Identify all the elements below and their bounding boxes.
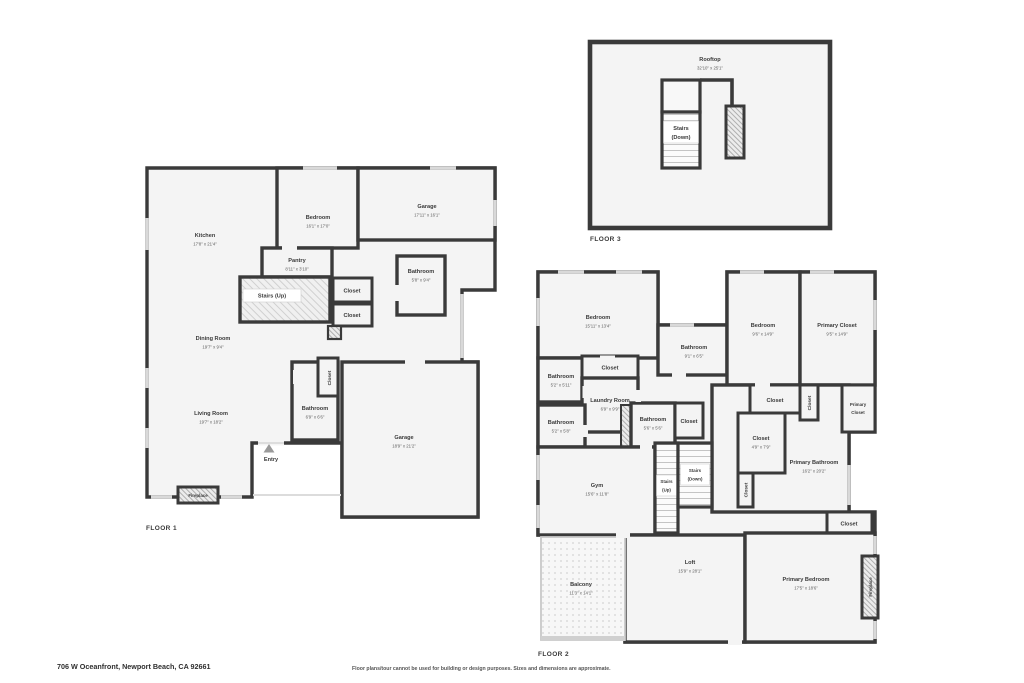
svg-text:9'5" x 14'9": 9'5" x 14'9" [826, 332, 848, 337]
floor-plan-page: Bedroom 16'1" x 17'0" Garage 17'11" x 16… [0, 0, 1024, 683]
svg-text:Closet: Closet [840, 522, 857, 528]
chase-f1 [328, 326, 341, 339]
floor3-label: FLOOR 3 [590, 236, 621, 243]
floor2-label: FLOOR 2 [538, 651, 569, 658]
room-primary-bedroom-f2: Primary Bedroom 17'5" x 18'6" [745, 533, 875, 642]
room-bathroom-upper-f1: Bathroom 5'8" x 9'4" [397, 256, 445, 315]
fireplace-f1: Fireplace [178, 487, 218, 503]
svg-text:(Down): (Down) [672, 135, 691, 141]
disclaimer-text: Floor plans/tour cannot be used for buil… [352, 666, 611, 672]
stairs-down-f2: Stairs (Down) [678, 443, 712, 507]
floor-3-plan: Rooftop 32'10" x 25'1" Stairs (Down) FLO… [590, 42, 830, 243]
svg-text:8'11" x 3'10": 8'11" x 3'10" [285, 267, 309, 272]
svg-text:Entry: Entry [264, 457, 279, 463]
svg-text:Garage: Garage [394, 435, 413, 441]
svg-text:Stairs: Stairs [689, 468, 702, 473]
svg-text:16'1" x 17'0": 16'1" x 17'0" [306, 224, 330, 229]
svg-text:Dining Room: Dining Room [196, 336, 231, 342]
svg-text:Closet: Closet [851, 410, 865, 415]
svg-text:Bedroom: Bedroom [586, 315, 611, 321]
svg-text:17'8" x 21'4": 17'8" x 21'4" [193, 242, 217, 247]
svg-text:19'7" x 18'2": 19'7" x 18'2" [199, 420, 223, 425]
svg-text:Loft: Loft [685, 560, 696, 566]
svg-text:32'10" x 25'1": 32'10" x 25'1" [697, 66, 723, 71]
svg-text:Closet: Closet [752, 436, 769, 442]
svg-text:5'2" x 5'8": 5'2" x 5'8" [552, 429, 571, 434]
room-closet2-f2: Closet [675, 403, 703, 438]
svg-text:19'7" x 9'4": 19'7" x 9'4" [202, 345, 224, 350]
balcony-f2: Balcony 11'3" x 14'1" [541, 537, 625, 641]
svg-text:Bathroom: Bathroom [302, 406, 328, 412]
svg-text:Stairs: Stairs [673, 126, 689, 132]
svg-text:Primary: Primary [850, 402, 867, 407]
svg-text:Garage: Garage [417, 204, 436, 210]
svg-text:15'6" x 11'8": 15'6" x 11'8" [585, 492, 609, 497]
svg-text:Bathroom: Bathroom [548, 420, 574, 426]
room-primary-closet2-f2: Primary Closet [842, 385, 875, 432]
svg-text:Closet: Closet [343, 289, 360, 295]
svg-text:Living Room: Living Room [194, 411, 228, 417]
svg-text:11'3" x 14'1": 11'3" x 14'1" [569, 591, 593, 596]
room-primary-closet1-f2: Primary Closet 9'5" x 14'9" [800, 272, 875, 385]
svg-text:Closet: Closet [327, 370, 333, 385]
svg-text:18'9" x 21'2": 18'9" x 21'2" [392, 444, 416, 449]
svg-text:Primary Bathroom: Primary Bathroom [790, 460, 839, 466]
entry-marker: Entry [258, 441, 284, 464]
property-address: 706 W Oceanfront, Newport Beach, CA 9266… [57, 662, 211, 671]
svg-text:Fireplace: Fireplace [188, 493, 208, 498]
room-garage-lower-f1: Garage 18'9" x 21'2" [342, 362, 478, 517]
svg-text:Gym: Gym [591, 483, 603, 489]
room-bathroom2-f2: Bathroom 5'2" x 5'11" [538, 358, 585, 402]
floor-2-plan: Bedroom 15'11" x 13'4" Bathroom 9'1" x 6… [538, 272, 878, 658]
svg-text:4'9" x 7'9": 4'9" x 7'9" [752, 445, 771, 450]
svg-text:Bathroom: Bathroom [640, 417, 666, 423]
svg-text:5'6" x 5'6": 5'6" x 5'6" [644, 426, 663, 431]
svg-text:Bathroom: Bathroom [408, 269, 434, 275]
room-bedroom-f1: Bedroom 16'1" x 17'0" [277, 168, 358, 248]
svg-text:Kitchen: Kitchen [195, 233, 216, 239]
svg-text:(Down): (Down) [688, 477, 703, 482]
svg-text:Laundry Room: Laundry Room [590, 398, 629, 404]
svg-text:15'11" x 13'4": 15'11" x 13'4" [585, 324, 611, 329]
svg-text:Bedroom: Bedroom [306, 215, 331, 221]
svg-text:Fireplace: Fireplace [868, 577, 873, 597]
room-bathroom1-f2: Bathroom 9'1" x 6'5" [658, 325, 727, 375]
room-bedroom2-f2: Bedroom 9'6" x 14'9" [727, 272, 800, 385]
svg-text:Rooftop: Rooftop [699, 57, 721, 63]
svg-text:Primary Closet: Primary Closet [817, 323, 857, 329]
svg-text:17'5" x 18'6": 17'5" x 18'6" [794, 586, 818, 591]
room-bedroom1-f2: Bedroom 15'11" x 13'4" [538, 272, 658, 358]
room-closet3-f1: Closet [318, 358, 338, 396]
room-loft-f2: Loft 15'9" x 28'1" [625, 535, 745, 642]
room-closet1-f1: Closet [333, 278, 372, 302]
room-pantry-f1: Pantry 8'11" x 3'10" [262, 248, 332, 277]
svg-text:Stairs: Stairs [660, 479, 673, 484]
svg-text:Bathroom: Bathroom [548, 374, 574, 380]
room-closet6-f2: Closet [800, 385, 818, 420]
stairs-up-f1: Stairs (Up) [240, 277, 330, 322]
svg-text:Closet: Closet [343, 313, 360, 319]
svg-text:Closet: Closet [807, 395, 813, 410]
svg-text:5'2" x 5'11": 5'2" x 5'11" [551, 383, 572, 388]
floor-plan-drawing: Bedroom 16'1" x 17'0" Garage 17'11" x 16… [0, 0, 1024, 683]
svg-text:6'9" x 9'9": 6'9" x 9'9" [601, 407, 620, 412]
room-garage-upper-f1: Garage 17'11" x 16'1" [358, 168, 495, 240]
svg-text:9'6" x 14'9": 9'6" x 14'9" [752, 332, 774, 337]
svg-text:17'11" x 16'1": 17'11" x 16'1" [414, 213, 440, 218]
room-bathroom3-f2: Bathroom 5'2" x 5'8" [538, 405, 585, 447]
svg-text:Closet: Closet [744, 482, 750, 497]
room-closet7-f2: Closet [827, 512, 872, 533]
svg-text:Balcony: Balcony [570, 582, 593, 588]
svg-text:Closet: Closet [601, 366, 618, 372]
chimney-f3 [726, 106, 744, 158]
floor1-label: FLOOR 1 [146, 525, 177, 532]
room-bathroom4-f2: Bathroom 5'6" x 5'6" [631, 403, 675, 447]
svg-text:Closet: Closet [766, 398, 783, 404]
floor-1-plan: Bedroom 16'1" x 17'0" Garage 17'11" x 16… [146, 168, 495, 532]
room-closet4-f2: Closet [738, 473, 753, 507]
svg-text:9'1" x 6'5": 9'1" x 6'5" [685, 354, 704, 359]
svg-text:16'2" x 20'2": 16'2" x 20'2" [802, 469, 826, 474]
svg-text:Bathroom: Bathroom [681, 345, 707, 351]
room-closet2-f1: Closet [333, 304, 372, 326]
svg-text:5'8" x 9'4": 5'8" x 9'4" [412, 278, 431, 283]
fireplace-f2: Fireplace [862, 556, 878, 618]
svg-text:Closet: Closet [680, 419, 697, 425]
svg-text:6'9" x 6'6": 6'9" x 6'6" [306, 415, 325, 420]
room-closet3-f2: Closet 4'9" x 7'9" [738, 413, 785, 473]
room-closet5-f2: Closet [750, 385, 800, 413]
svg-text:Bedroom: Bedroom [751, 323, 776, 329]
svg-text:15'9" x 28'1": 15'9" x 28'1" [678, 569, 702, 574]
svg-text:Pantry: Pantry [288, 258, 306, 264]
room-gym-f2: Gym 15'6" x 11'8" [538, 447, 655, 535]
svg-text:Primary Bedroom: Primary Bedroom [783, 577, 830, 583]
stairs-up-f2: Stairs (Up) [655, 443, 678, 533]
svg-text:(Up): (Up) [662, 488, 671, 493]
svg-text:Stairs (Up): Stairs (Up) [258, 294, 286, 300]
